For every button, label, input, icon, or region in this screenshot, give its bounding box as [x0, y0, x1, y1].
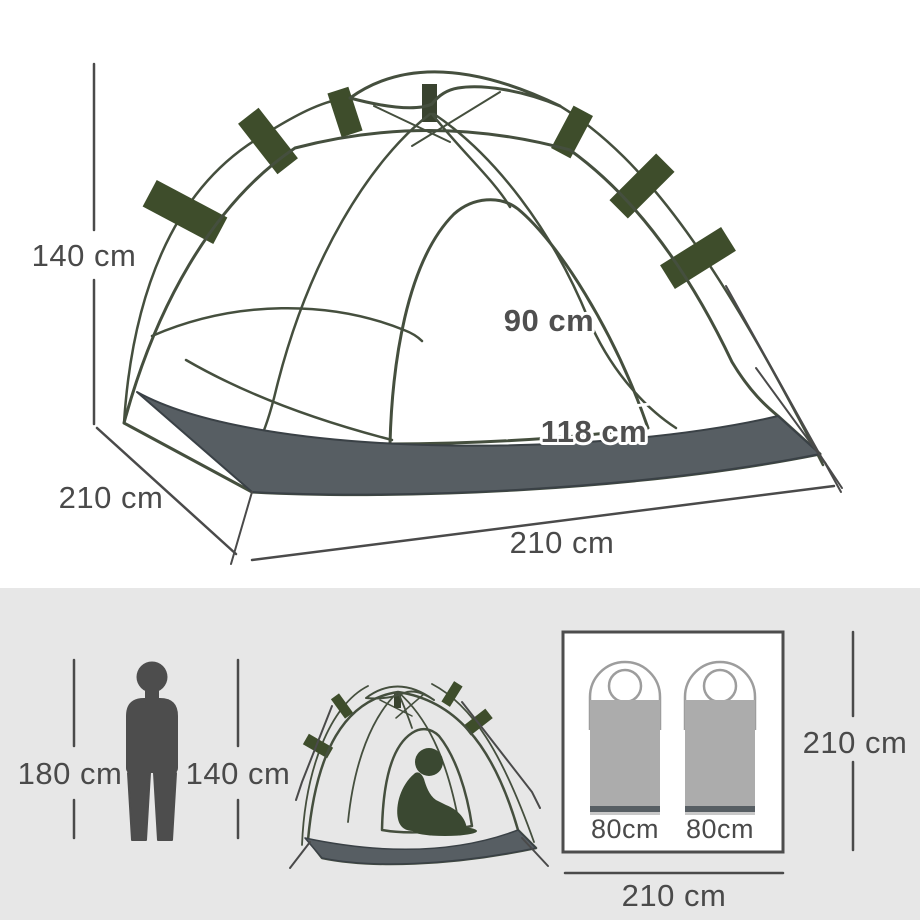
person-neck — [145, 689, 159, 699]
main-tent-illustration: 90 cm 118 cm — [124, 72, 842, 564]
door-bottom-line — [398, 428, 502, 432]
depth-label: 210 cm — [59, 480, 164, 515]
bag2-stripe — [685, 806, 755, 812]
bag1-stripe — [590, 806, 660, 812]
sleeping-bag-icon-1 — [590, 662, 660, 815]
height-label: 140 cm — [32, 238, 137, 273]
tent-seams — [152, 114, 676, 444]
floor-depth-label: 210 cm — [803, 725, 908, 760]
person-left-leg — [128, 773, 150, 840]
bag2-body — [685, 700, 755, 806]
seated-person-head — [415, 748, 443, 776]
width-dimension: 210 cm — [252, 486, 834, 560]
floor-width-label: 210 cm — [622, 878, 727, 913]
person-head — [137, 662, 168, 693]
bag1-pillow — [609, 670, 641, 702]
tent-dimensions-infographic: 90 cm 118 cm 140 cm 210 cm 210 cm 180 cm… — [0, 0, 920, 920]
bag2-width-label: 80cm — [686, 814, 754, 844]
person-height-label: 180 cm — [18, 756, 123, 791]
fly-edge-left — [124, 97, 352, 423]
door-width-label: 118 cm — [541, 414, 647, 449]
tent-cap — [350, 72, 560, 108]
door-height-label: 90 cm — [504, 303, 594, 338]
height-dimension: 140 cm — [32, 64, 137, 424]
bag2-pillow — [704, 670, 736, 702]
person-right-leg — [154, 773, 176, 840]
sleeping-bag-icon-2 — [685, 662, 755, 815]
tent-height-label: 140 cm — [186, 756, 291, 791]
person-torso — [126, 698, 178, 773]
bag1-width-label: 80cm — [591, 814, 659, 844]
infographic-svg: 90 cm 118 cm 140 cm 210 cm 210 cm 180 cm… — [0, 0, 920, 920]
bag1-body — [590, 700, 660, 806]
width-label: 210 cm — [510, 525, 615, 560]
